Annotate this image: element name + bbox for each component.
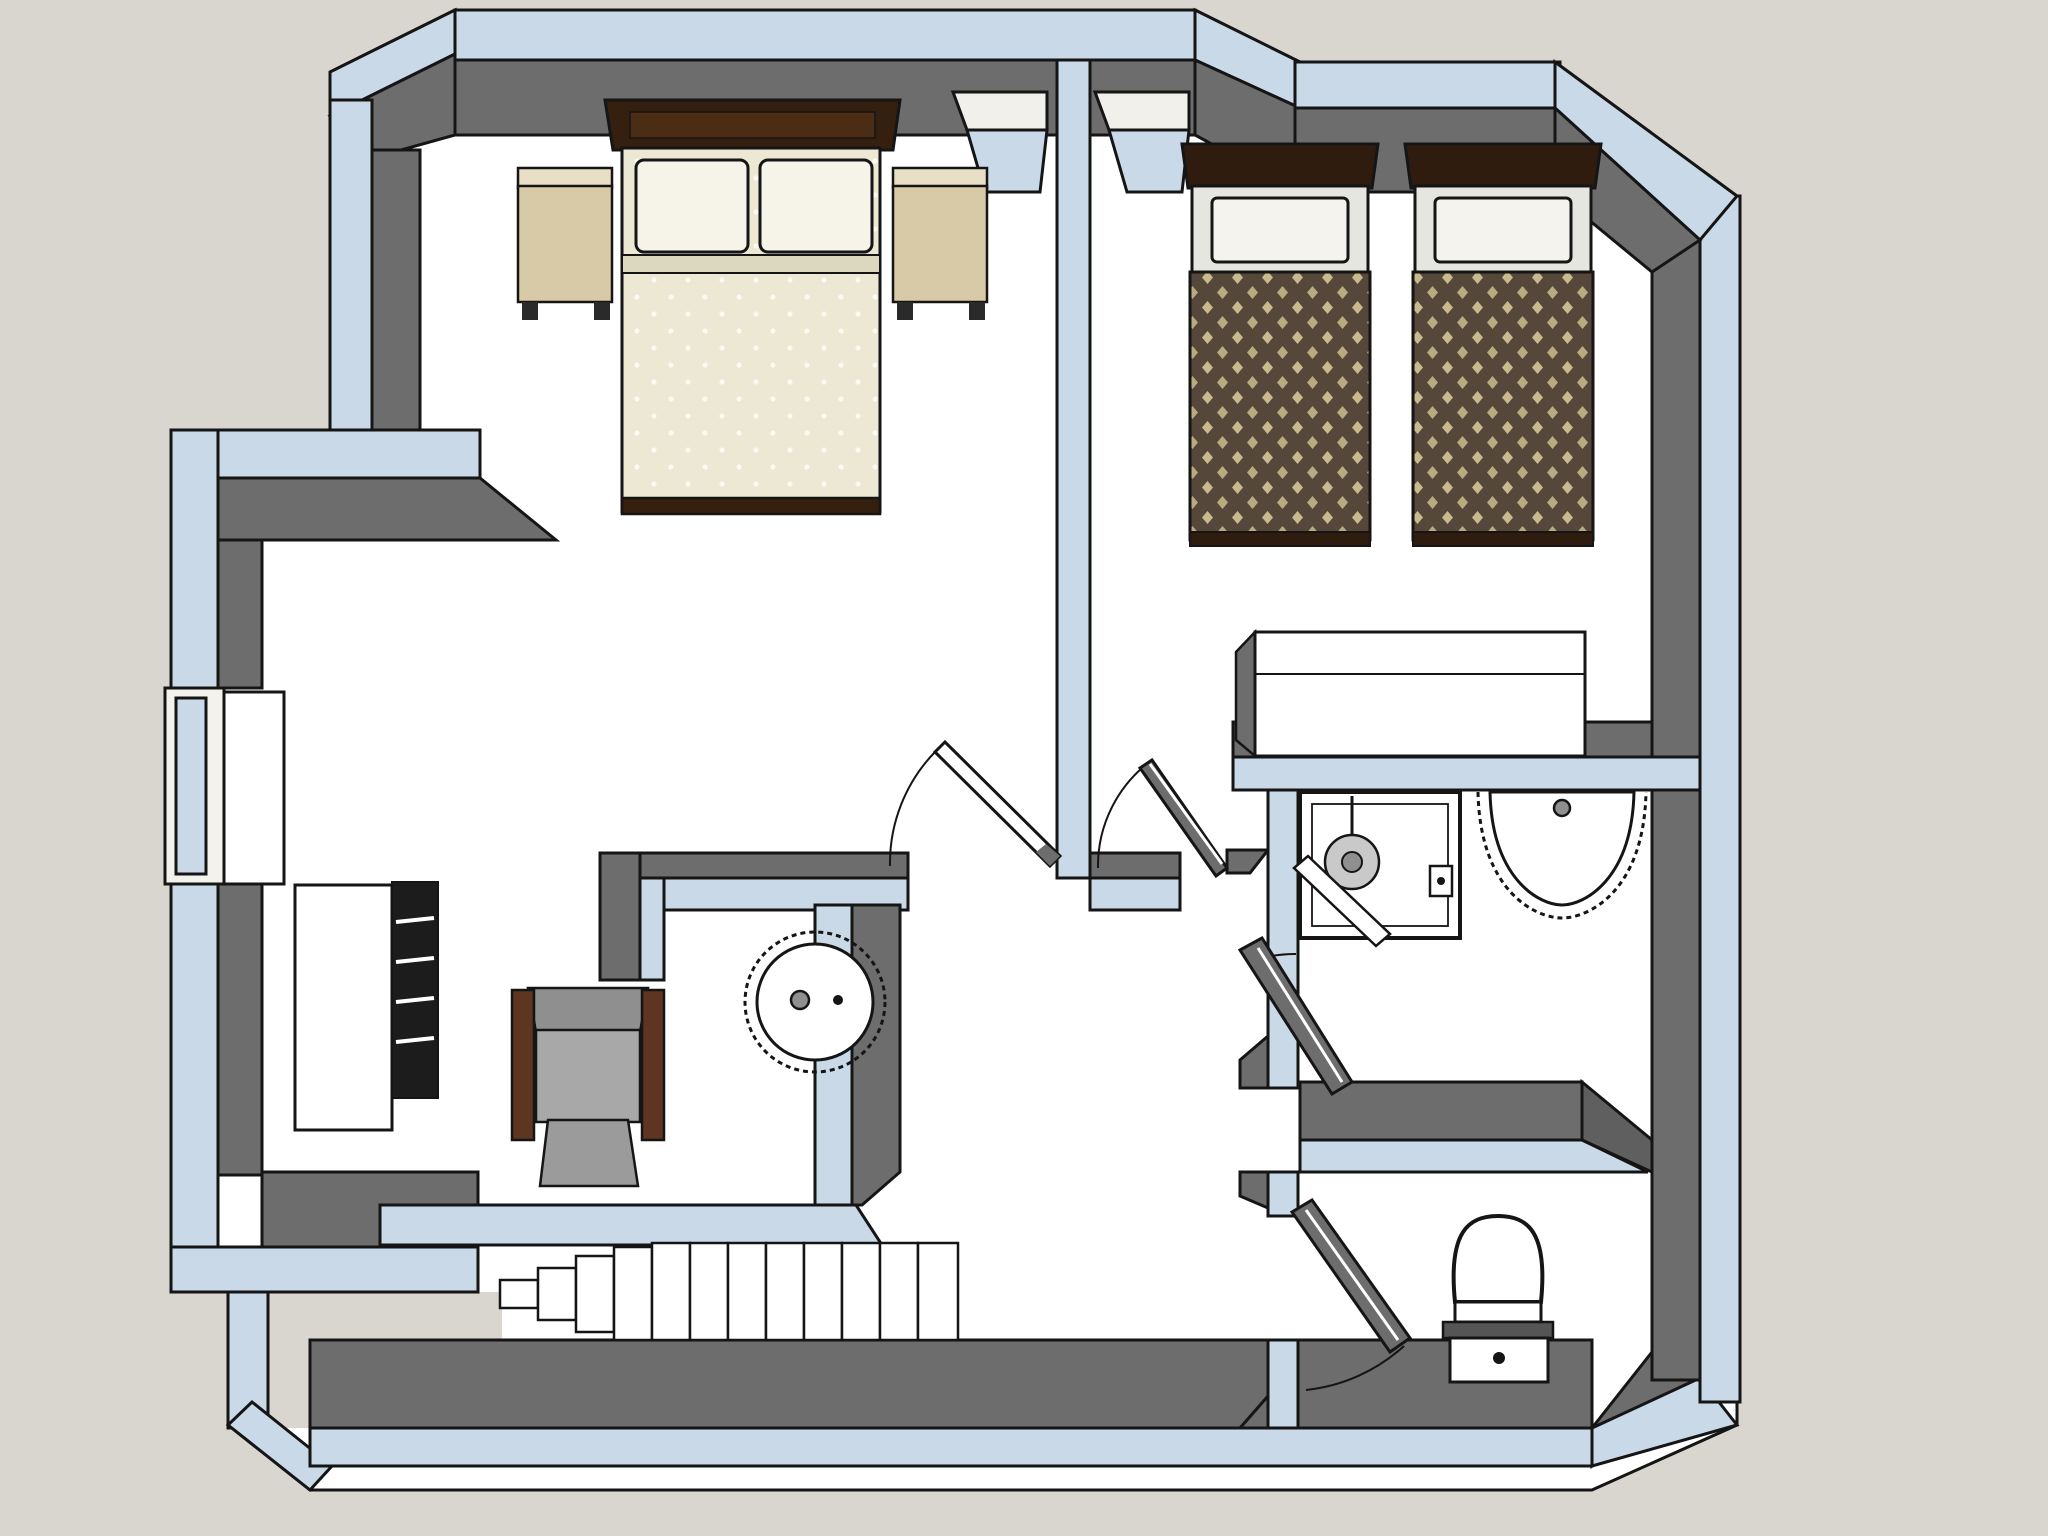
nightstand-leg	[522, 302, 538, 320]
bathroom-west-wall-top	[1268, 790, 1298, 1088]
duvet-fold	[622, 255, 880, 273]
toilet	[1443, 1216, 1553, 1382]
nightstand-left	[518, 168, 612, 320]
desk	[295, 885, 392, 1130]
shower-valve-knob	[1437, 877, 1445, 885]
bedroom1-west-wall-face	[372, 150, 420, 430]
twin-bed-duvet	[1190, 272, 1370, 540]
north-wall2-top	[1295, 62, 1560, 108]
east-wall-top	[1700, 196, 1740, 1402]
stair-step	[842, 1243, 880, 1340]
armchair-armrest-left	[512, 990, 534, 1140]
nightstand-body	[893, 186, 987, 302]
stair-step	[614, 1247, 652, 1340]
stair-step	[576, 1256, 614, 1332]
wardrobe	[1236, 632, 1585, 756]
hall-north-wall-face-right	[1090, 853, 1180, 878]
west-wall-face-lower	[218, 884, 262, 1175]
armchair-seat	[536, 1030, 640, 1122]
twin-bed-2	[1405, 144, 1601, 546]
window-west-sill	[224, 692, 284, 884]
bathroom-north-wall-top	[1233, 757, 1700, 790]
radiator-railing	[392, 882, 438, 1098]
double-bed	[605, 100, 900, 514]
stair-step	[728, 1243, 766, 1340]
north-wall-top	[455, 10, 1195, 60]
basin-tap	[791, 991, 809, 1009]
twin-bed-headboard	[1405, 144, 1601, 188]
nightstand-leg	[897, 302, 913, 320]
hall-wall-return-face	[600, 853, 640, 980]
stair-step	[500, 1280, 538, 1308]
floor-plan-canvas	[0, 0, 2048, 1536]
stair-step	[918, 1243, 958, 1340]
hall-wall-return-top	[640, 878, 664, 980]
hall-north-wall-top-right	[1090, 878, 1180, 910]
toilet-seat-hinge	[1455, 1302, 1541, 1322]
twin-bed-headboard	[1182, 144, 1378, 188]
stairwell-north-wall-top	[380, 1205, 882, 1245]
nightstand-right	[893, 168, 987, 320]
stair-step	[652, 1243, 690, 1340]
railing-frame	[392, 882, 438, 1098]
toilet-flush-button	[1493, 1352, 1505, 1364]
twin-bed-foot	[1413, 532, 1593, 546]
west-wall-face-upper	[218, 540, 262, 688]
floor-plan-svg	[0, 0, 2048, 1536]
stair-step	[766, 1243, 804, 1340]
double-bed-headboard-panel	[630, 112, 875, 138]
nightstand-leg	[594, 302, 610, 320]
armchair-armrest-right	[642, 990, 664, 1140]
armchair-footrest	[540, 1120, 638, 1186]
nightstand-body	[518, 186, 612, 302]
bedroom-divider-wall	[1057, 60, 1090, 878]
wardrobe-side	[1236, 632, 1255, 756]
basin-drain	[833, 995, 843, 1005]
stair-divider-wall-face	[852, 905, 900, 1205]
hall-north-wall-face-left	[600, 853, 908, 878]
stair-step	[880, 1243, 918, 1340]
twin-bed-pillow	[1435, 198, 1571, 262]
double-bed-footboard	[622, 498, 880, 514]
twin-bed-pillow	[1212, 198, 1348, 262]
basin-bowl	[757, 944, 873, 1060]
nightstand-leg	[969, 302, 985, 320]
wing-south-wall-top	[171, 1247, 478, 1292]
shower-stall	[1294, 792, 1460, 946]
shower-head-center	[1342, 852, 1362, 872]
pillow-left	[636, 160, 748, 252]
sink-tap	[1554, 800, 1570, 816]
toilet-tank-top	[1443, 1322, 1553, 1338]
stair-step	[538, 1268, 576, 1320]
east-wall-face	[1652, 228, 1700, 1380]
stair-step	[690, 1243, 728, 1340]
twin-bed-duvet	[1413, 272, 1593, 540]
bedroom1-west-wall-top	[330, 100, 372, 430]
window-west	[165, 688, 284, 884]
toilet-bowl	[1454, 1216, 1543, 1302]
south-wall-face	[310, 1340, 1592, 1428]
stair-step	[804, 1243, 842, 1340]
twin-bed-1	[1182, 144, 1378, 546]
desk-top	[295, 885, 392, 1130]
armchair-back	[528, 988, 648, 1032]
wc-north-wall-face	[1300, 1082, 1582, 1140]
window-west-glass	[176, 698, 206, 874]
south-wall-top	[310, 1428, 1592, 1466]
wardrobe-top	[1255, 632, 1585, 756]
pillow-right	[760, 160, 872, 252]
wc-west-wall-top-lower	[1268, 1340, 1298, 1428]
twin-bed-foot	[1190, 532, 1370, 546]
